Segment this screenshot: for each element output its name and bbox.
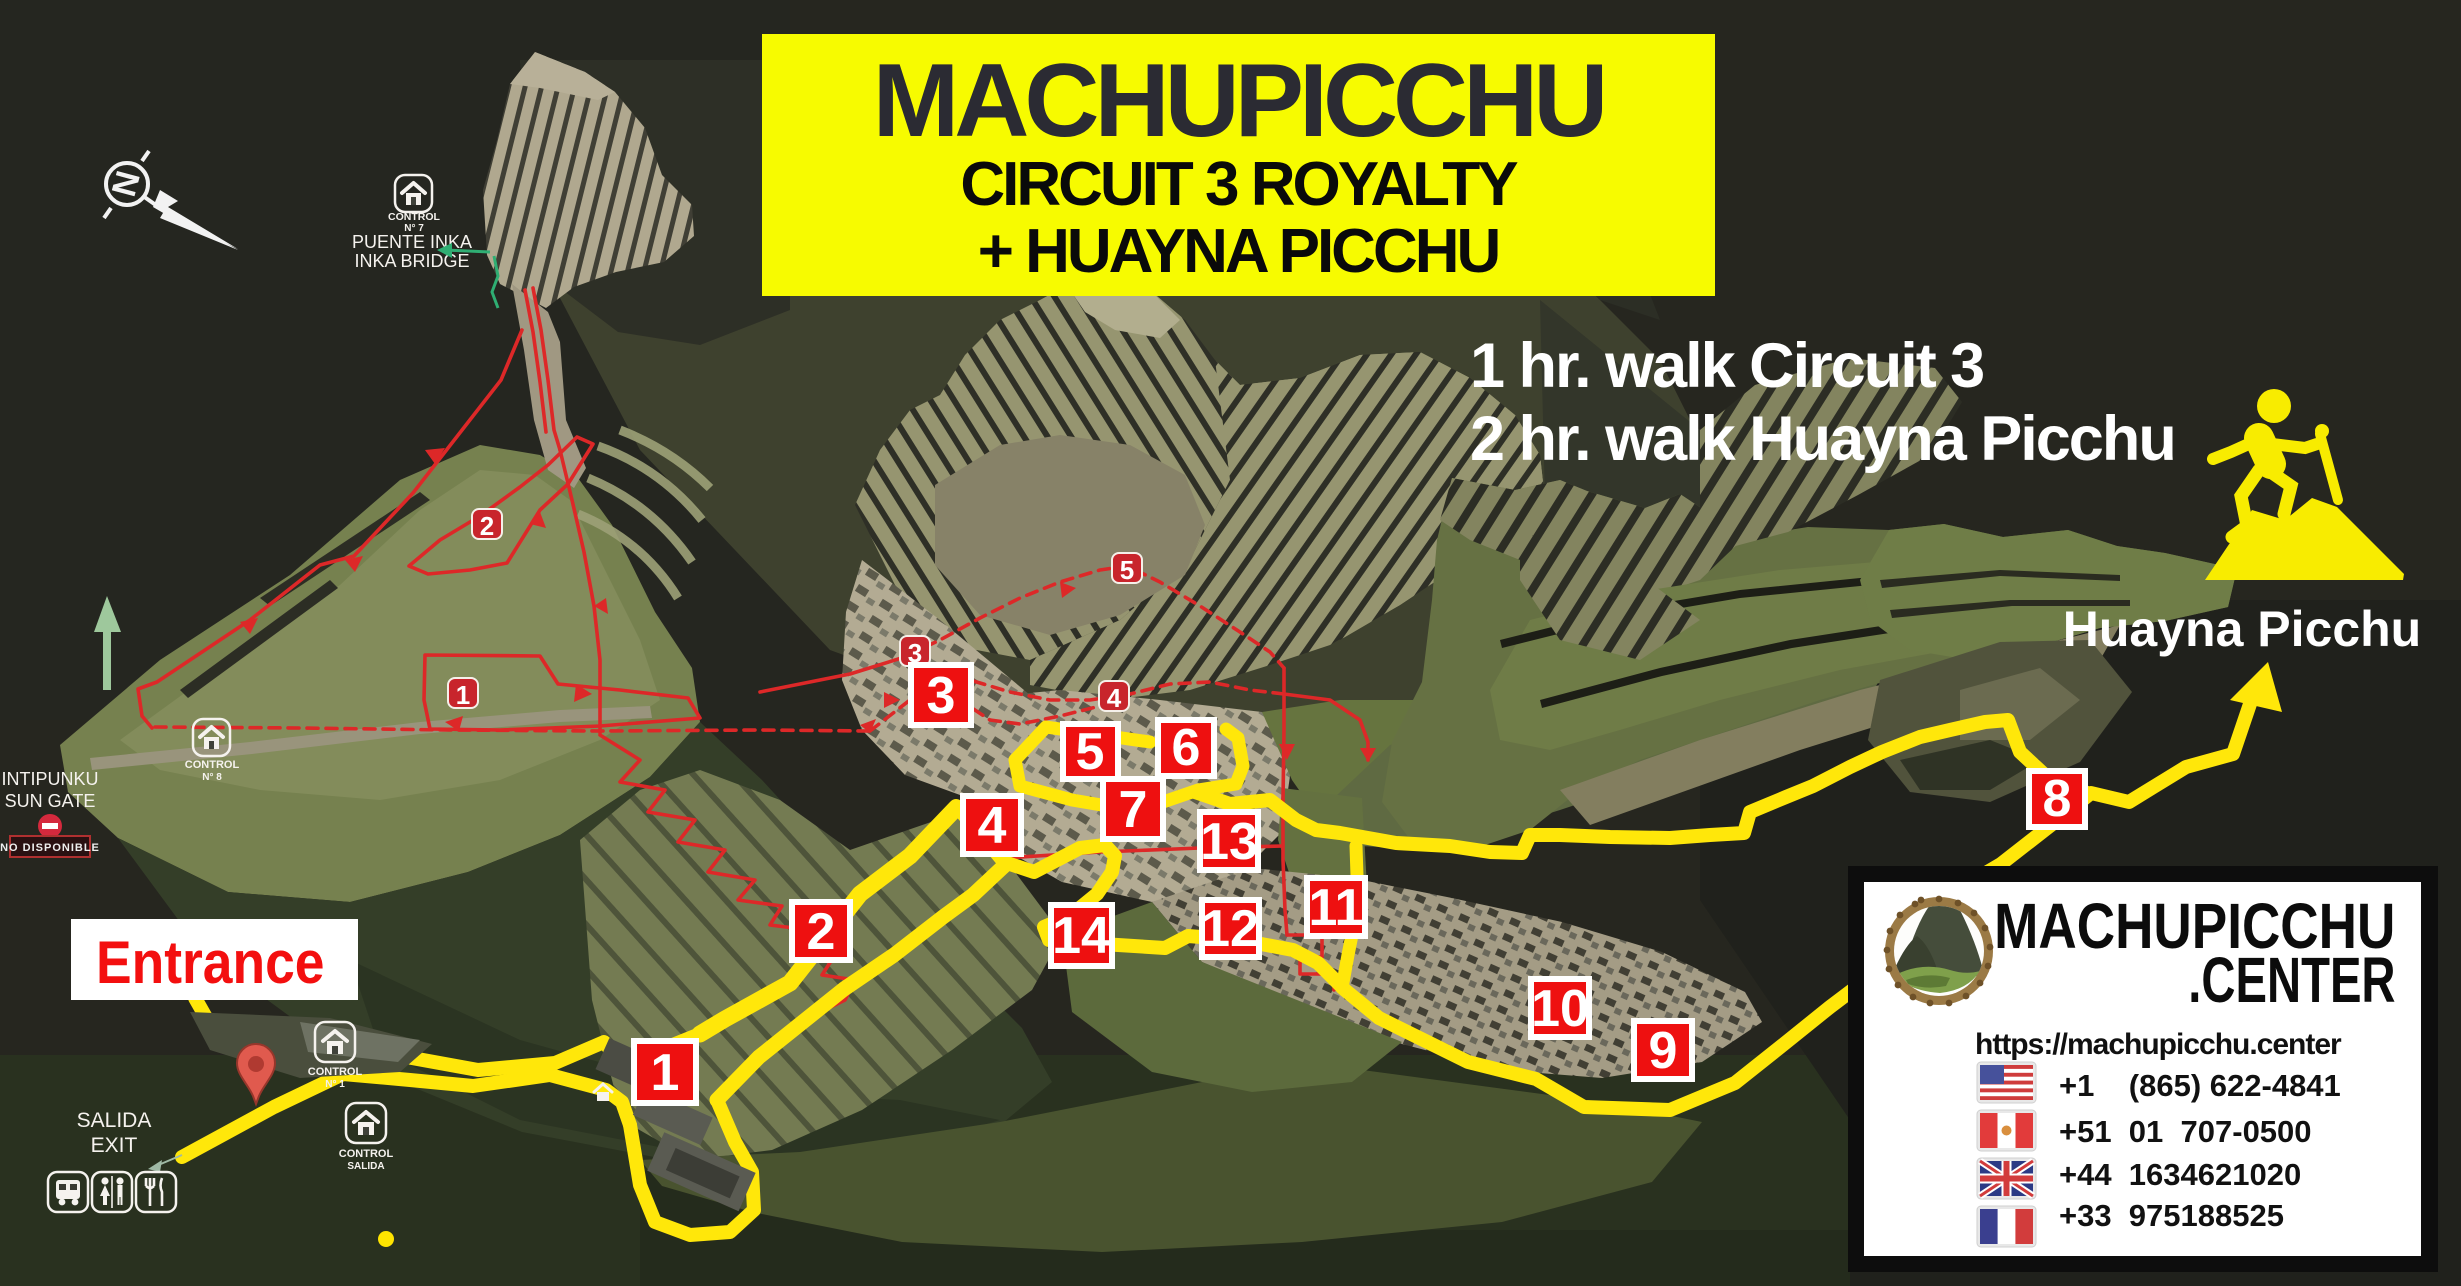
svg-text:CONTROL: CONTROL <box>308 1066 363 1078</box>
svg-text:CIRCUIT 3 ROYALTY: CIRCUIT 3 ROYALTY <box>960 150 1518 219</box>
svg-text:.CENTER: .CENTER <box>2188 944 2395 1016</box>
svg-text:4: 4 <box>978 797 1007 855</box>
svg-text:1 hr. walk Circuit 3: 1 hr. walk Circuit 3 <box>1470 331 1983 401</box>
svg-text:SUN GATE: SUN GATE <box>5 791 96 811</box>
svg-text:EXIT: EXIT <box>91 1134 138 1157</box>
svg-text:INKA BRIDGE: INKA BRIDGE <box>354 251 469 271</box>
svg-text:8: 8 <box>2043 770 2072 828</box>
svg-text:5: 5 <box>1120 555 1134 585</box>
svg-text:+ HUAYNA PICCHU: + HUAYNA PICCHU <box>978 217 1499 286</box>
svg-text:10: 10 <box>1531 980 1589 1038</box>
svg-text:2: 2 <box>807 903 836 961</box>
svg-text:12: 12 <box>1201 900 1259 958</box>
svg-text:4: 4 <box>1107 683 1122 713</box>
svg-text:SALIDA: SALIDA <box>77 1109 152 1132</box>
svg-text:CONTROL: CONTROL <box>185 759 240 771</box>
svg-text:NO DISPONIBLE: NO DISPONIBLE <box>0 842 100 854</box>
svg-text:13: 13 <box>1200 813 1258 871</box>
svg-text:SALIDA: SALIDA <box>347 1161 384 1172</box>
svg-text:6: 6 <box>1172 719 1201 777</box>
svg-text:1: 1 <box>456 680 470 710</box>
svg-text:+51 01 707-0500: +51 01 707-0500 <box>2059 1114 2312 1149</box>
svg-text:MACHUPICCHU: MACHUPICCHU <box>873 43 1604 159</box>
svg-text:CONTROL: CONTROL <box>388 211 440 223</box>
svg-text:9: 9 <box>1649 1022 1678 1080</box>
svg-text:14: 14 <box>1052 907 1110 965</box>
svg-text:3: 3 <box>927 667 956 725</box>
svg-text:N° 1: N° 1 <box>325 1079 345 1090</box>
svg-text:7: 7 <box>1119 781 1148 839</box>
svg-text:INTIPUNKU: INTIPUNKU <box>1 769 98 789</box>
svg-text:Huayna Picchu: Huayna Picchu <box>2063 601 2421 657</box>
svg-text:2 hr. walk Huayna Picchu: 2 hr. walk Huayna Picchu <box>1470 404 2175 474</box>
svg-text:N° 8: N° 8 <box>202 772 222 783</box>
svg-text:https://machupicchu.center: https://machupicchu.center <box>1975 1028 2342 1061</box>
svg-text:2: 2 <box>480 511 494 541</box>
svg-text:+44 1634621020: +44 1634621020 <box>2059 1157 2301 1192</box>
svg-text:5: 5 <box>1076 723 1105 781</box>
svg-text:CONTROL: CONTROL <box>339 1148 394 1160</box>
svg-text:1: 1 <box>651 1044 680 1102</box>
svg-text:11: 11 <box>1309 879 1364 937</box>
svg-text:Entrance: Entrance <box>96 930 324 997</box>
svg-text:+33 975188525: +33 975188525 <box>2059 1198 2284 1233</box>
svg-text:+1 (865) 622-4841: +1 (865) 622-4841 <box>2059 1068 2341 1103</box>
